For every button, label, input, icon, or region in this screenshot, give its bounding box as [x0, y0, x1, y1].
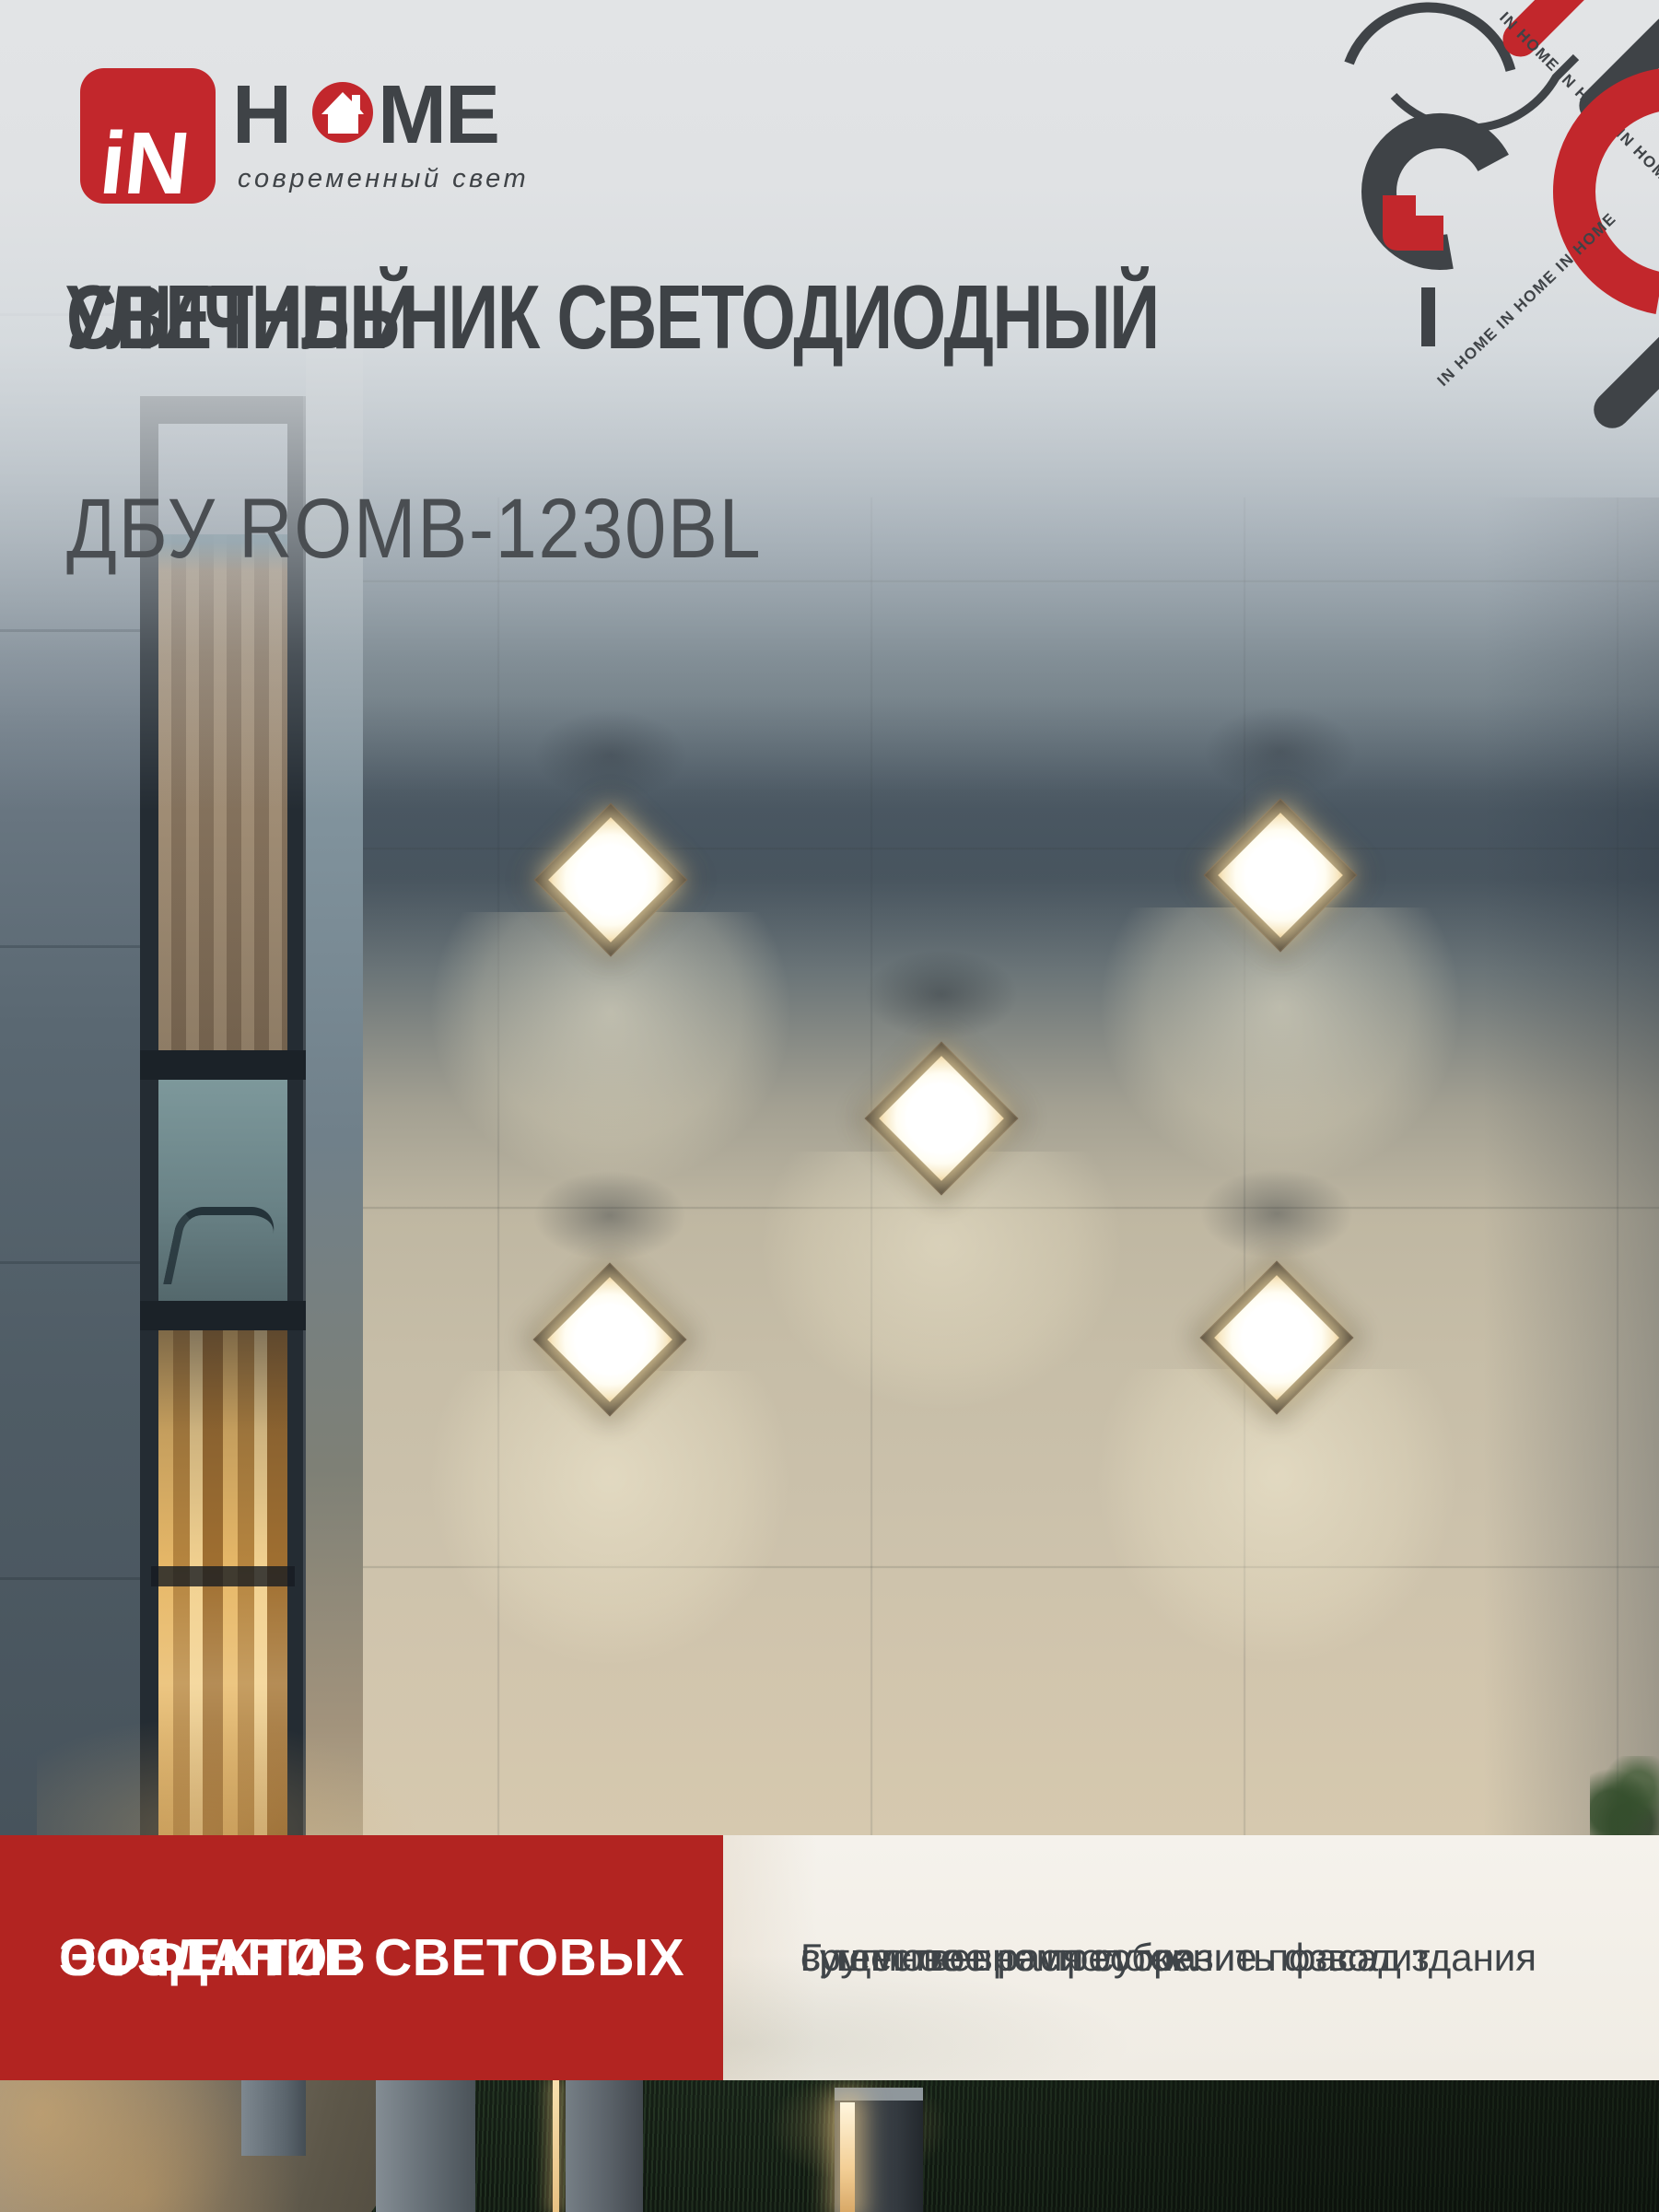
decor-dark-bar-lower	[1586, 316, 1659, 436]
fence-post	[241, 2080, 306, 2156]
decor-text-bottom: IN HOME IN HOME IN HOME	[1434, 209, 1620, 390]
decor-red-arc	[1558, 72, 1659, 310]
light-top-shadow	[1171, 1152, 1383, 1276]
bollard-light-line	[553, 2080, 559, 2212]
plant-silhouette	[1590, 1756, 1659, 1835]
window-mullion	[140, 1301, 306, 1330]
decor-red-corner	[1383, 195, 1443, 251]
chair-silhouette	[163, 1207, 279, 1284]
logo-me-text: ME	[378, 69, 498, 161]
garden-ground-strip	[0, 2080, 1659, 2212]
fence-post	[566, 2080, 643, 2212]
bollard-cap	[835, 2088, 923, 2101]
logo-in-text: iN	[96, 114, 194, 210]
promo-page: IN HOME IN HOME IN HOME IN HOME IN HOME …	[0, 0, 1659, 2212]
feature-description-panel: Групповое расположение позволит существе…	[723, 1835, 1659, 2080]
light-top-shadow	[504, 1153, 716, 1278]
bollard-glow-strip	[840, 2102, 855, 2212]
logo-h-text: H	[232, 69, 290, 161]
description-line-3: в темное время суток.	[800, 1925, 1199, 1990]
decor-small-bar	[1421, 287, 1435, 346]
brand-decoration: IN HOME IN HOME IN HOME IN HOME IN HOME …	[1309, 0, 1659, 442]
feature-banner-red: СОЗДАНИЕ СВЕТОВЫХ ЭФФЕКТОВ	[0, 1835, 723, 2080]
title-line-2: УЛИЧНЫЙ	[66, 269, 417, 365]
logo-tagline: современный свет	[238, 164, 529, 193]
fence-post	[376, 2080, 475, 2212]
decor-thin-arc	[1320, 0, 1537, 201]
window-light-spill	[37, 1557, 608, 1835]
feature-heading-line-2: ЭФФЕКТОВ	[59, 1921, 366, 1995]
inhome-logo: iN H ME современный свет	[66, 53, 545, 210]
window-mullion	[140, 1050, 306, 1080]
light-top-shadow	[835, 932, 1047, 1057]
